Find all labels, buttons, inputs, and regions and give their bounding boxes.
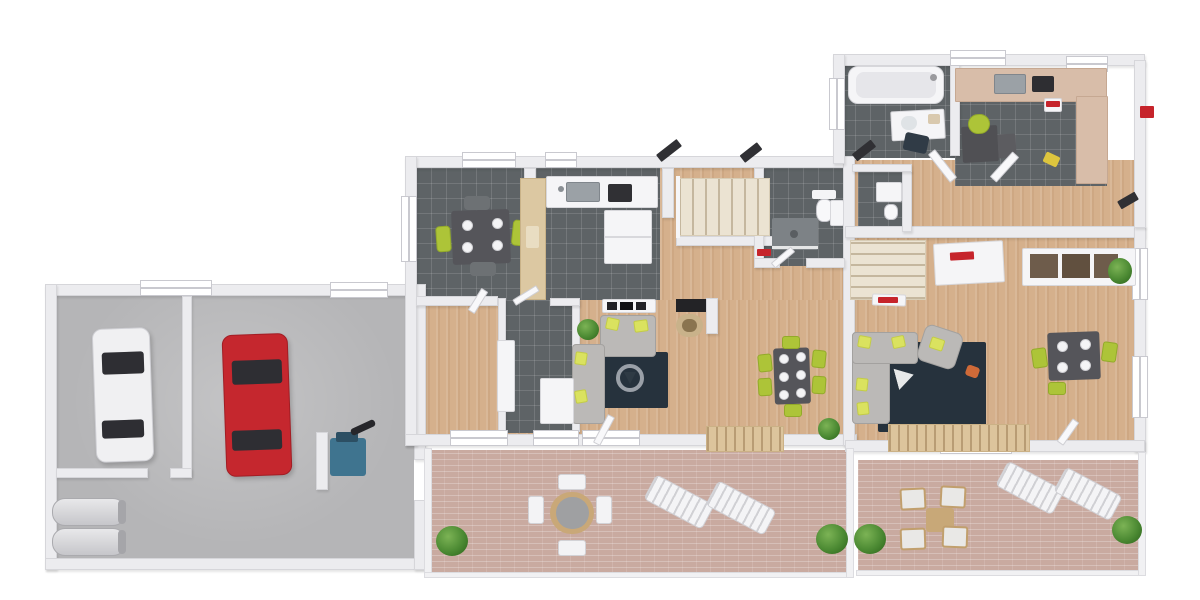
vanity-sink (901, 116, 917, 130)
dining-plate-2 (492, 218, 503, 229)
living-hall-wall (416, 296, 498, 306)
kitchen-sink (566, 182, 600, 202)
annex-red-logo (1140, 106, 1154, 118)
white-car-body (92, 327, 155, 463)
unit2-plant (1108, 258, 1132, 284)
oil-tank-1 (52, 498, 126, 526)
main-door-pergola (706, 426, 784, 452)
unit2-wc-wall-right (902, 170, 912, 232)
living-plate-3 (779, 372, 789, 382)
terrace-bush-3 (854, 524, 886, 554)
patio-chair-2 (939, 485, 966, 508)
unit2-chair-bottom (1048, 382, 1066, 395)
oil-tank-1-cap (118, 500, 126, 524)
terrace-table-top (556, 497, 589, 529)
terrace-bush-1 (436, 526, 468, 556)
storage-door-stub (550, 298, 580, 306)
dining-chair-bottom (470, 262, 496, 276)
terrace-main-paver-floor (430, 450, 848, 574)
terrace-main-edge-right (846, 448, 854, 578)
unit2-stairs-logo (878, 297, 898, 303)
unit2-pergola (888, 424, 1030, 452)
tank-room-wall-b (170, 468, 192, 478)
living-stub-wall (706, 298, 718, 334)
bath-red-logo (757, 249, 771, 256)
main-stairs-rail (676, 176, 680, 238)
rattan-chair-seat (682, 319, 697, 332)
main-stairs (678, 178, 770, 236)
cabinet-seam (604, 236, 652, 238)
shower-glass (772, 246, 818, 249)
tv-device-2 (620, 302, 633, 310)
kitchen-faucet (558, 186, 564, 192)
tv-device-1 (607, 302, 617, 310)
terrace-chair-s (558, 540, 586, 556)
terrace-main-edge-left (424, 448, 432, 576)
wardrobe-door-2 (1062, 254, 1090, 278)
unit2-wc-wall-top (852, 164, 912, 172)
annex-counter-right (1076, 96, 1108, 184)
storage-radiator (497, 340, 515, 412)
dining-plate-1 (462, 220, 473, 231)
terrace-main-edge-bottom (424, 572, 852, 578)
living-plant-2 (818, 418, 840, 440)
dining-chair-top (464, 196, 490, 210)
annex-appliance-logo (1046, 101, 1060, 107)
main-window-top-2 (545, 152, 577, 168)
living-plate-5 (779, 390, 789, 400)
bath-wall-bottom-b (806, 258, 845, 268)
oil-tank-2-cap (118, 530, 126, 554)
oil-tank-2 (52, 528, 126, 556)
white-car-rear-window (102, 419, 145, 438)
terrace-right-edge-right (1138, 452, 1146, 576)
unit2-plate-2 (1080, 339, 1091, 350)
annex-sink (994, 74, 1026, 94)
sofa-pillow-1 (605, 317, 620, 331)
patio-chair-3 (900, 528, 927, 551)
kitchen-hall-stub-wall (662, 168, 674, 218)
bath-sink (830, 200, 844, 226)
living-plate-2 (796, 352, 806, 362)
living-plate-4 (796, 370, 806, 380)
red-car-body (222, 333, 293, 477)
storage-cabinet (540, 378, 574, 424)
annex-window-left (829, 78, 845, 130)
unit2-table (1047, 331, 1101, 381)
wc-bowl (884, 204, 898, 220)
kitchen-counter (546, 176, 658, 208)
vanity-towels (928, 114, 940, 124)
unit2-stairs (850, 240, 926, 300)
fireplace-hearth (676, 299, 706, 312)
living-window-1 (450, 430, 508, 446)
living-plate-1 (779, 354, 789, 364)
unit2-chair-right (1101, 341, 1119, 363)
shower-drain (790, 230, 798, 238)
terrace-bush-2 (816, 524, 848, 554)
living-chair-4 (811, 376, 826, 395)
main-window-top-1 (462, 152, 516, 168)
main-window-left (401, 196, 417, 262)
annex-wall-right (1134, 60, 1146, 228)
dining-plate-4 (492, 240, 503, 251)
unit2-plate-1 (1057, 341, 1068, 352)
garage-bay-wall (182, 296, 192, 476)
living-window-2 (533, 430, 579, 446)
living-chair-2 (757, 378, 772, 397)
living-chair-3 (811, 349, 827, 368)
unit2-pillow-3 (855, 377, 868, 391)
unit2-chair-left (1031, 347, 1049, 369)
unit2-sideboard (933, 240, 1005, 286)
dining-chair-left (435, 226, 452, 253)
toilet-tank (812, 190, 836, 199)
floorplan-scene (0, 0, 1200, 600)
unit2-plate-3 (1057, 362, 1068, 373)
sofa-pillow-4 (574, 389, 588, 404)
sofa-pillow-2 (633, 319, 649, 333)
red-car-windshield (232, 359, 283, 385)
living-chair-5 (782, 336, 800, 349)
tub-faucet (930, 74, 937, 81)
tank-room-wall-a (56, 468, 148, 478)
annex-cooktop (1032, 76, 1054, 92)
unit2-pillow-4 (856, 401, 869, 415)
garage-wall-bottom (45, 558, 427, 570)
terrace-chair-w (528, 496, 544, 524)
living-chair-1 (757, 353, 773, 372)
unit2-wall-top (845, 226, 1145, 238)
living-chair-6 (784, 404, 802, 417)
peninsula-deco (526, 226, 539, 248)
wc-sink (876, 182, 902, 202)
garage-window-1 (140, 280, 212, 296)
red-car-rear-window (232, 429, 283, 451)
white-car-windshield (102, 351, 145, 374)
dining-plate-3 (462, 242, 473, 253)
dining-table (451, 209, 511, 265)
garage-nib-wall (316, 432, 328, 490)
garage-wall-left (45, 284, 57, 570)
terrace-chair-e (596, 496, 612, 524)
unit2-plate-4 (1080, 360, 1091, 371)
terrace-chair-n (558, 474, 586, 490)
terrace-right-edge-bottom (856, 570, 1144, 576)
unit2-sideboard-logo (950, 251, 974, 260)
heating-unit (330, 438, 366, 476)
living-plate-6 (796, 388, 806, 398)
patio-chair-1 (899, 487, 926, 510)
terrace-bush-4 (1112, 516, 1142, 544)
wardrobe-door-1 (1030, 254, 1058, 278)
living-window-3 (582, 430, 640, 446)
unit2-window-right-2 (1132, 356, 1148, 418)
patio-chair-4 (942, 526, 969, 549)
sofa-pillow-3 (574, 351, 588, 366)
bathtub-inner (856, 72, 936, 98)
kitchen-cooktop (608, 184, 632, 202)
annex-window-top-1 (950, 50, 1006, 66)
tv-device-3 (636, 302, 646, 310)
living-plant (577, 319, 599, 340)
garage-window-2 (330, 282, 388, 298)
unit2-pillow-1 (857, 335, 872, 349)
